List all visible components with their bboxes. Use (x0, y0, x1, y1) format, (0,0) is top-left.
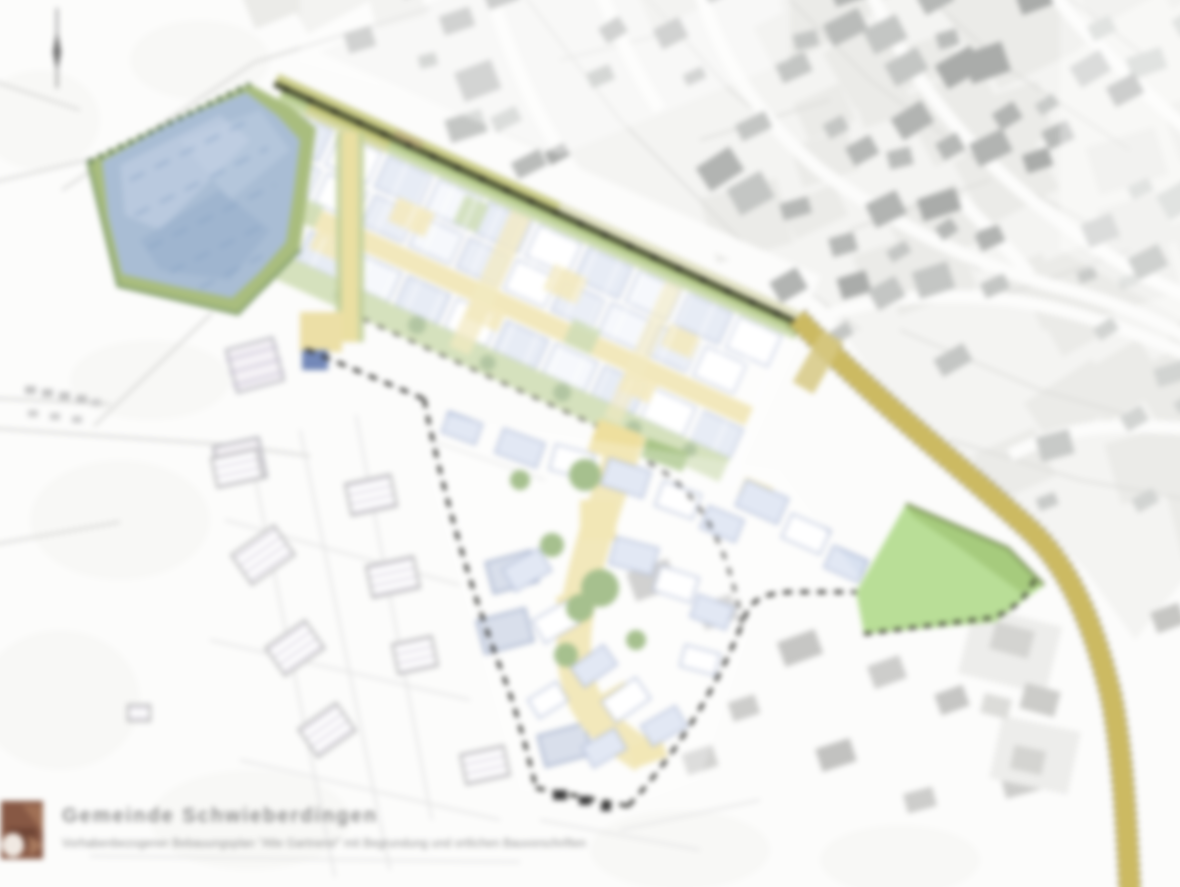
svg-text:Vorhabenbezogener Bebauungspla: Vorhabenbezogener Bebauungsplan "Alte Ga… (62, 838, 586, 850)
svg-text:Gemeinde Schwieberdingen: Gemeinde Schwieberdingen (62, 805, 378, 827)
